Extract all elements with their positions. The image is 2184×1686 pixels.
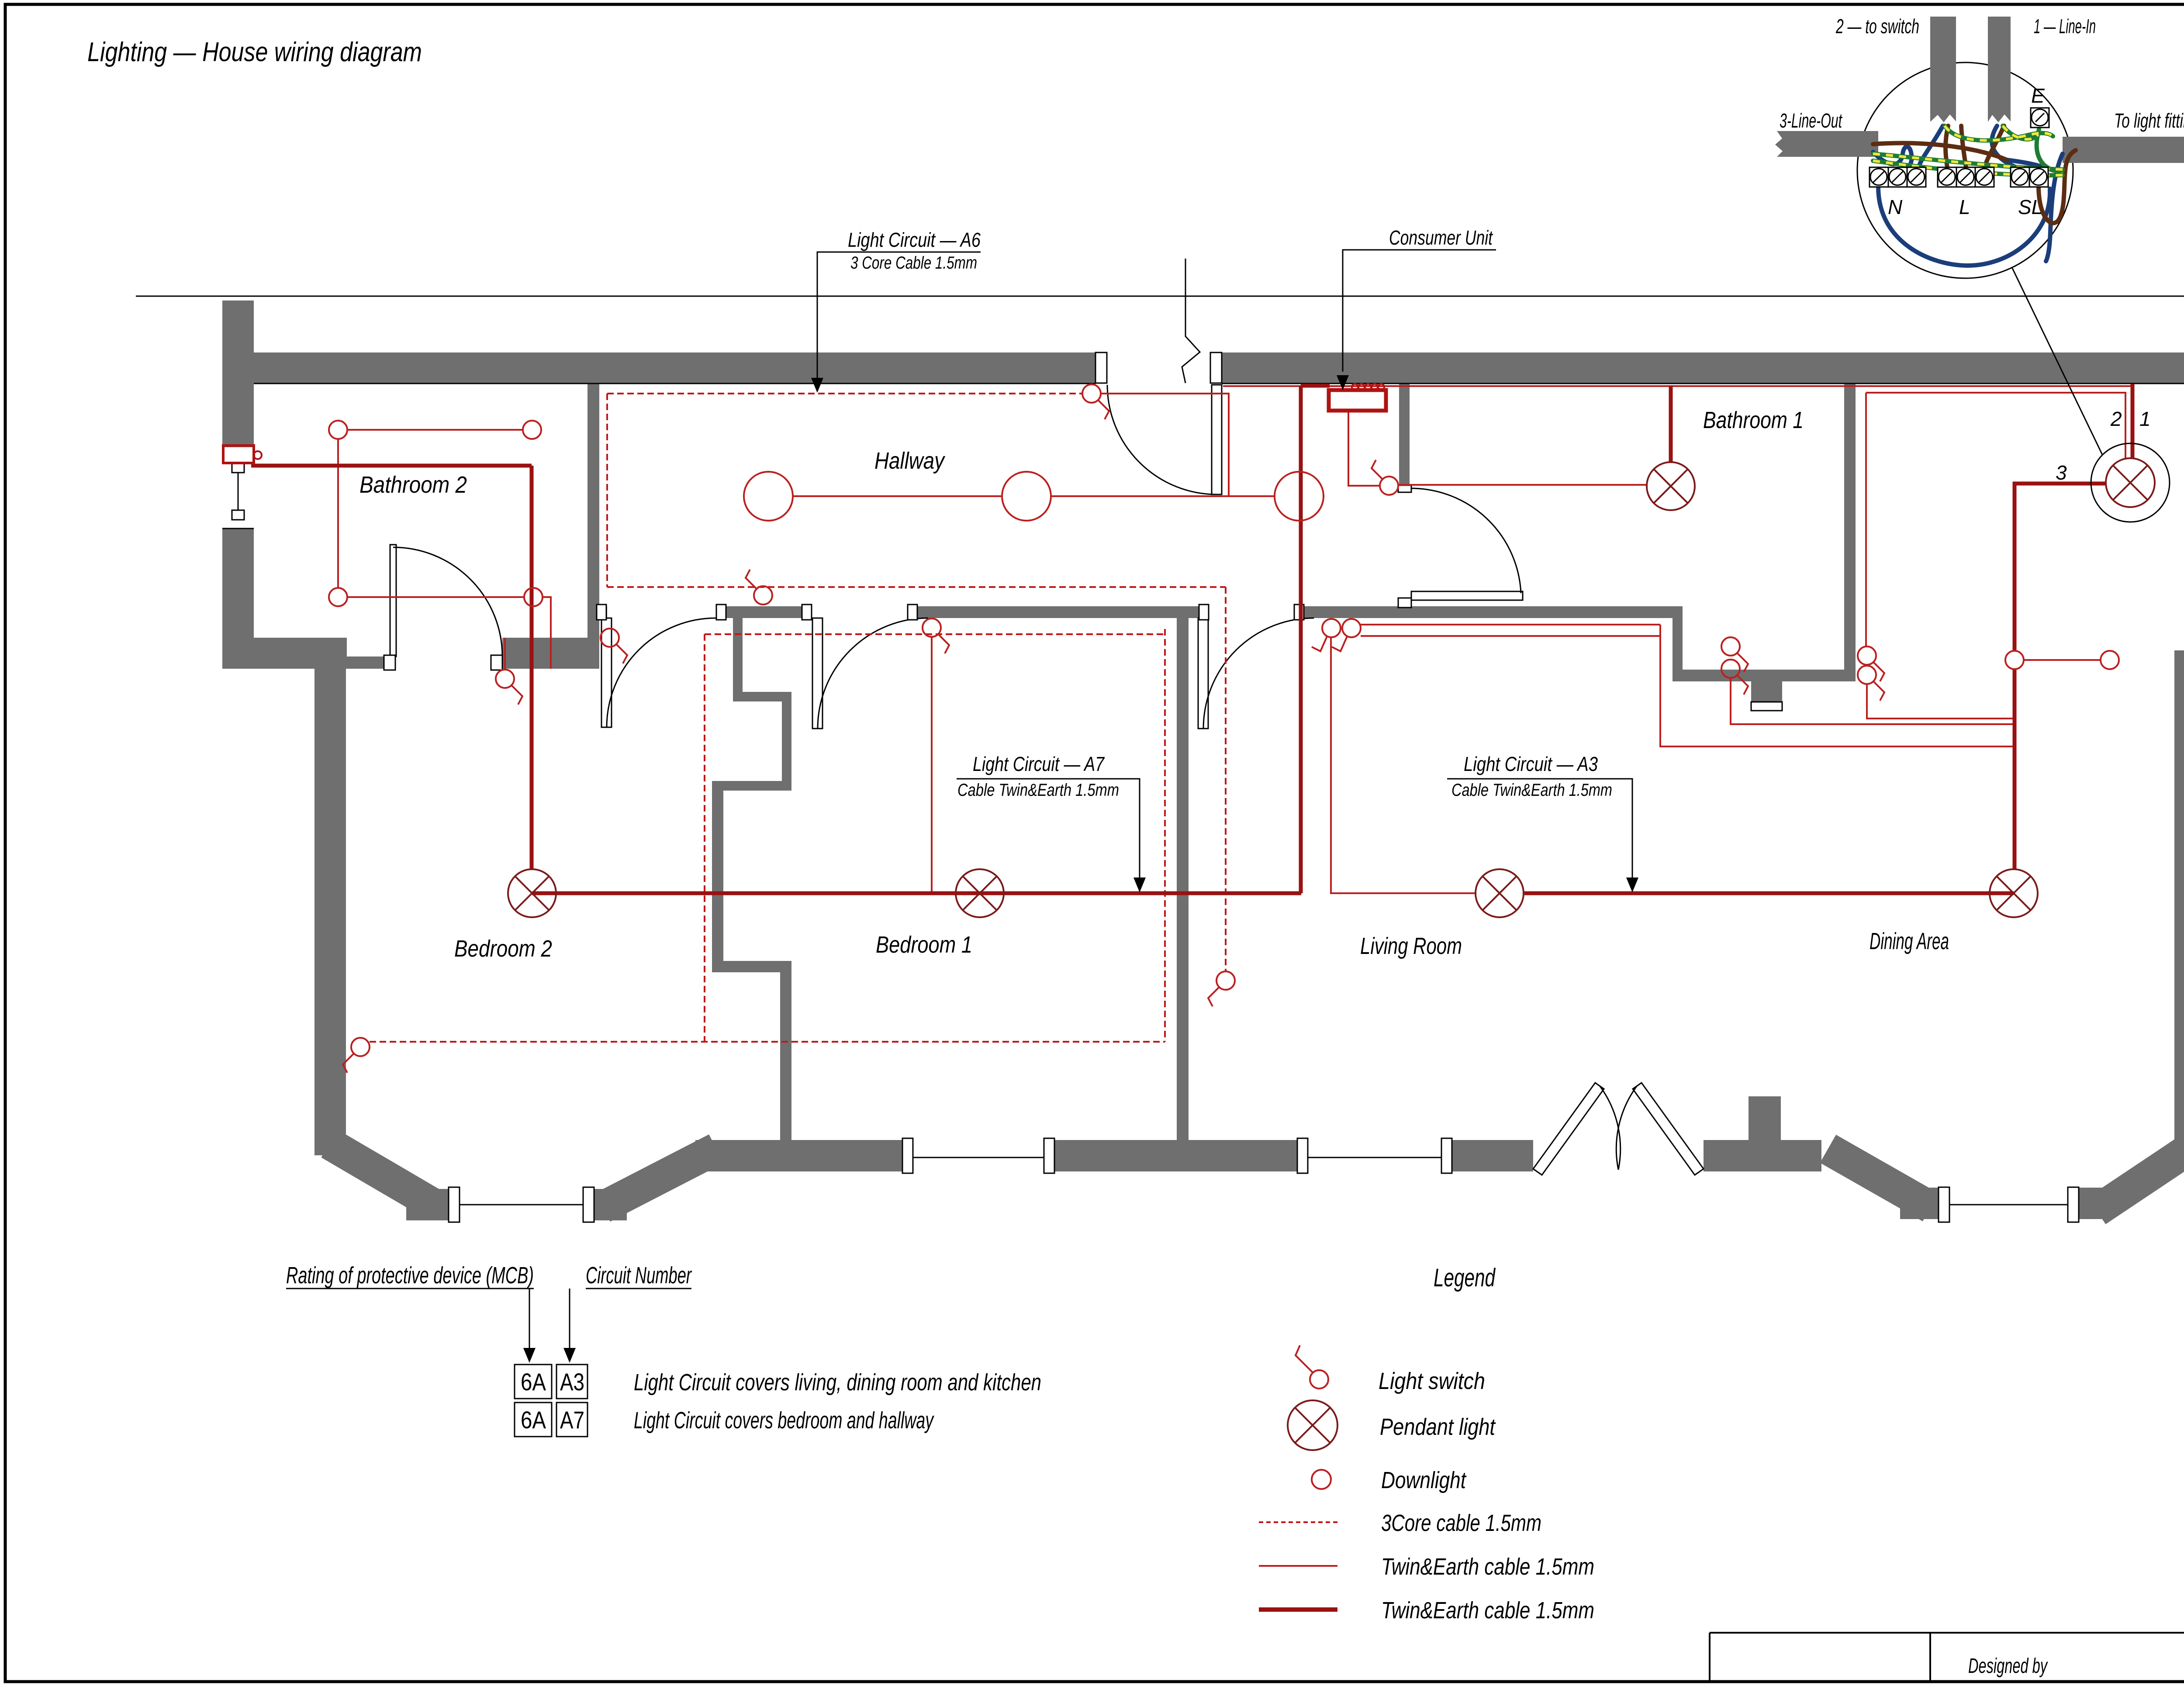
svg-text:Cable Twin&Earth 1.5mm: Cable Twin&Earth 1.5mm xyxy=(957,781,1119,800)
svg-text:Light Circuit — A7: Light Circuit — A7 xyxy=(973,753,1105,775)
svg-text:Light switch: Light switch xyxy=(1379,1368,1485,1394)
svg-text:Bedroom 1: Bedroom 1 xyxy=(876,932,972,958)
svg-text:Light Circuit — A6: Light Circuit — A6 xyxy=(848,228,981,251)
svg-text:Consumer Unit: Consumer Unit xyxy=(1389,226,1493,249)
svg-text:Light Circuit covers bedroom a: Light Circuit covers bedroom and hallway xyxy=(634,1407,934,1434)
svg-text:Twin&Earth cable 1.5mm: Twin&Earth cable 1.5mm xyxy=(1381,1597,1594,1624)
svg-text:Cable Twin&Earth 1.5mm: Cable Twin&Earth 1.5mm xyxy=(1451,781,1612,800)
svg-text:Living Room: Living Room xyxy=(1360,933,1462,959)
svg-text:2: 2 xyxy=(2110,408,2122,430)
svg-text:2 — to switch: 2 — to switch xyxy=(1835,15,1919,38)
svg-text:Bathroom 1: Bathroom 1 xyxy=(1703,407,1804,433)
svg-text:SL: SL xyxy=(2018,196,2042,218)
svg-text:A7: A7 xyxy=(560,1406,584,1434)
svg-text:3 Core Cable 1.5mm: 3 Core Cable 1.5mm xyxy=(850,253,977,273)
svg-text:Light Circuit — A3: Light Circuit — A3 xyxy=(1464,753,1598,775)
svg-text:3: 3 xyxy=(2056,461,2067,484)
svg-text:E: E xyxy=(2031,84,2045,107)
svg-text:Lighting — House wiring diagra: Lighting — House wiring diagram xyxy=(87,37,422,67)
svg-text:1: 1 xyxy=(2139,408,2151,430)
svg-text:Circuit Number: Circuit Number xyxy=(586,1262,692,1289)
svg-text:6A: 6A xyxy=(521,1368,546,1396)
svg-text:Dining Area: Dining Area xyxy=(1870,928,1949,954)
svg-text:Designed by: Designed by xyxy=(1968,1655,2048,1678)
svg-text:Bathroom 2: Bathroom 2 xyxy=(359,472,467,498)
svg-text:Pendant light: Pendant light xyxy=(1380,1414,1496,1440)
svg-text:Downlight: Downlight xyxy=(1381,1467,1467,1493)
svg-text:Legend: Legend xyxy=(1434,1264,1496,1292)
svg-text:1 — Line-In: 1 — Line-In xyxy=(2034,15,2096,38)
svg-text:3-Line-Out: 3-Line-Out xyxy=(1780,109,1842,132)
svg-text:To light fitting: To light fitting xyxy=(2114,109,2184,132)
svg-text:Light Circuit covers living, d: Light Circuit covers living, dining room… xyxy=(634,1369,1041,1396)
svg-text:Twin&Earth cable 1.5mm: Twin&Earth cable 1.5mm xyxy=(1381,1554,1594,1580)
svg-text:6A: 6A xyxy=(521,1406,546,1434)
svg-text:N: N xyxy=(1888,196,1903,218)
svg-text:L: L xyxy=(1959,196,1970,218)
svg-text:A3: A3 xyxy=(560,1368,584,1396)
svg-text:Rating of protective device (M: Rating of protective device (MCB) xyxy=(286,1262,534,1289)
svg-text:Hallway: Hallway xyxy=(874,448,946,474)
svg-text:3Core cable 1.5mm: 3Core cable 1.5mm xyxy=(1381,1510,1541,1536)
svg-text:Bedroom 2: Bedroom 2 xyxy=(454,936,552,962)
